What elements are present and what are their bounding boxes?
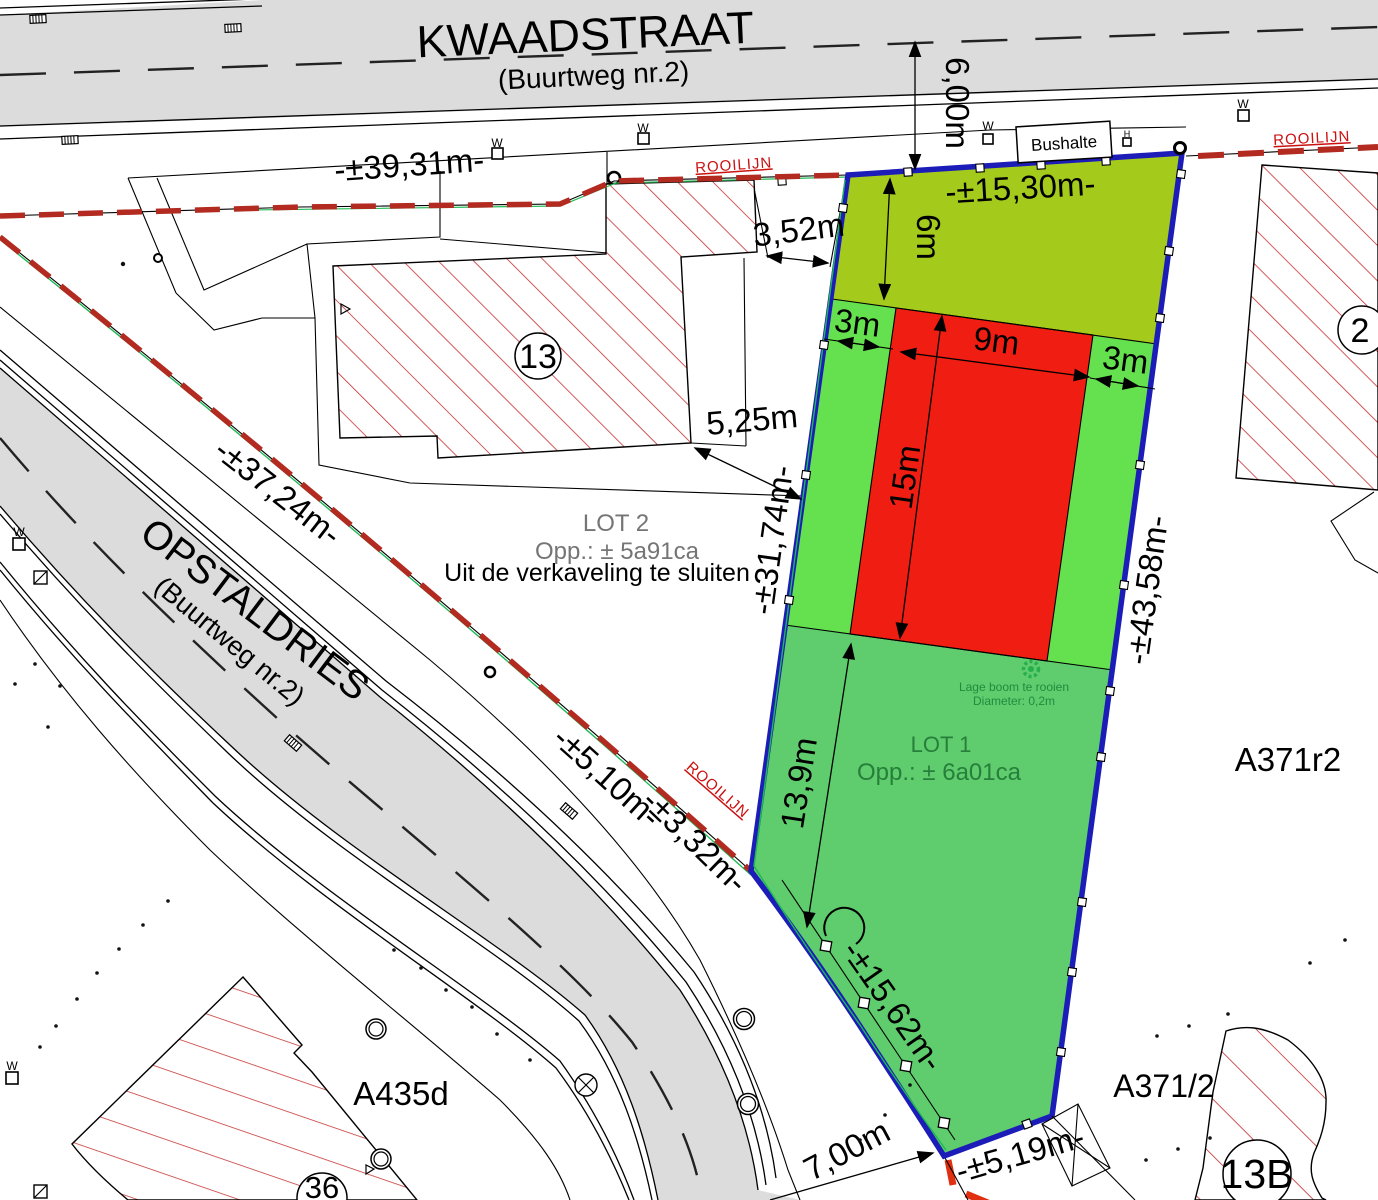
svg-text:W: W (13, 525, 25, 539)
svg-text:LOT 1: LOT 1 (911, 732, 972, 757)
svg-text:A371r2: A371r2 (1235, 741, 1341, 778)
svg-text:A435d: A435d (353, 1075, 448, 1112)
svg-text:6m: 6m (910, 214, 947, 260)
svg-text:2: 2 (1351, 312, 1370, 350)
svg-text:Diameter: 0,2m: Diameter: 0,2m (973, 694, 1055, 708)
svg-text:Uit de verkaveling te sluiten: Uit de verkaveling te sluiten (444, 559, 750, 587)
svg-text:36: 36 (305, 1170, 339, 1200)
svg-text:6,00m: 6,00m (939, 57, 976, 149)
svg-text:13: 13 (519, 338, 557, 376)
svg-text:W: W (491, 136, 503, 150)
svg-text:Opp.: ± 6a01ca: Opp.: ± 6a01ca (857, 759, 1022, 786)
svg-text:W: W (982, 119, 994, 133)
svg-text:9m: 9m (971, 319, 1021, 362)
svg-text:W: W (1237, 97, 1249, 111)
svg-text:A371/2: A371/2 (1113, 1068, 1214, 1104)
svg-text:W: W (6, 1059, 18, 1073)
svg-text:Lage boom te rooien: Lage boom te rooien (959, 680, 1069, 694)
svg-text:13B: 13B (1221, 1151, 1294, 1197)
svg-text:W: W (637, 121, 649, 135)
svg-text:LOT 2: LOT 2 (583, 510, 649, 537)
svg-text:3m: 3m (1100, 338, 1150, 381)
svg-text:Bushalte: Bushalte (1030, 132, 1097, 155)
svg-text:H: H (1124, 129, 1131, 139)
svg-text:3m: 3m (832, 301, 882, 344)
